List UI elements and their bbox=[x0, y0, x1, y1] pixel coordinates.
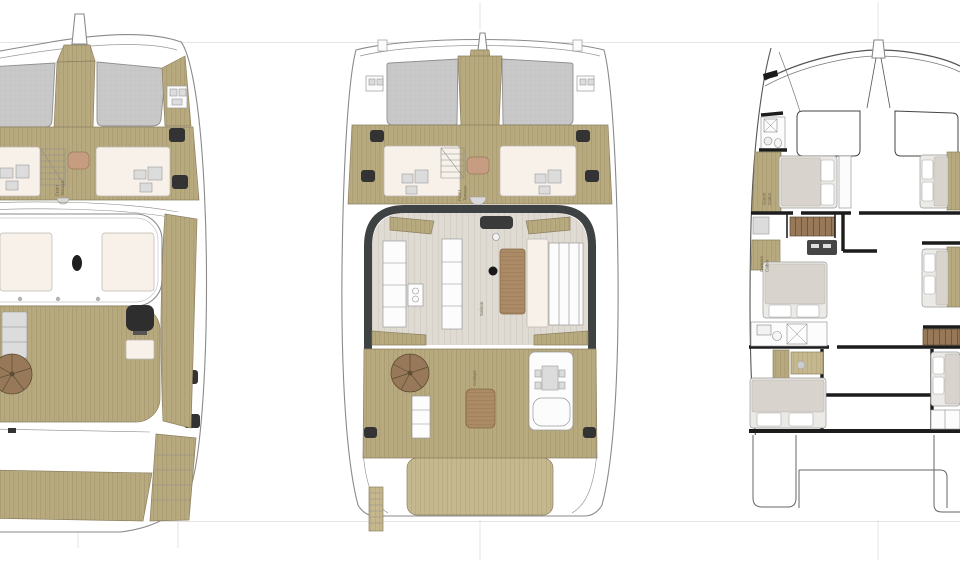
bow-post-starboard bbox=[573, 40, 582, 51]
aft-platform bbox=[0, 470, 152, 521]
side-deck bbox=[161, 214, 197, 428]
cockpit-fridge bbox=[412, 396, 430, 438]
bridgedeck-front-starboard bbox=[895, 111, 958, 156]
davit-platform bbox=[799, 470, 947, 508]
ensuite-bathroom bbox=[751, 322, 827, 346]
cockpit: Cockpit bbox=[363, 349, 597, 458]
saloon: Saloon bbox=[368, 209, 592, 349]
guest-cabin-label-line1: Guest bbox=[762, 192, 767, 205]
bow-post-port bbox=[378, 40, 387, 51]
saloon-table bbox=[500, 249, 525, 314]
sink-icon bbox=[764, 137, 772, 145]
terrace-table bbox=[68, 152, 89, 169]
front-terrace-label-line1: Front bbox=[457, 189, 462, 201]
helm-seat bbox=[126, 305, 154, 331]
crew-cabin bbox=[759, 113, 787, 150]
transom-steps bbox=[150, 434, 196, 521]
cockpit-label: Cockpit bbox=[472, 370, 477, 386]
front-terrace-label-line2: Terrace bbox=[60, 180, 65, 196]
coachroof bbox=[0, 214, 162, 306]
flybridge-deck-plan: Front Terrace bbox=[0, 0, 230, 565]
bow-pole bbox=[72, 14, 87, 44]
lounge-pad bbox=[2, 312, 27, 358]
vanity bbox=[791, 352, 823, 374]
sink-icon bbox=[757, 325, 771, 335]
saloon-sofa bbox=[527, 239, 548, 327]
boarding-ladder bbox=[369, 487, 383, 531]
port-aft-cabin bbox=[750, 350, 826, 428]
stool bbox=[797, 361, 805, 369]
bow-locker bbox=[167, 86, 187, 108]
sunpad-starboard bbox=[500, 146, 576, 196]
side-daybed bbox=[549, 243, 583, 325]
hull-bottoms bbox=[753, 435, 960, 512]
main-deck-plan: Front Terrace bbox=[330, 0, 630, 565]
front-terrace-label-line2: Terrace bbox=[463, 185, 468, 201]
roof-sunpad-port bbox=[0, 233, 52, 291]
bow-pole bbox=[478, 33, 487, 50]
companionway-steps bbox=[790, 217, 835, 236]
guest-cabin-label-line2: Cabin bbox=[767, 192, 772, 205]
galley-sink bbox=[408, 284, 423, 306]
bow-pole bbox=[872, 40, 885, 58]
roof-sunpad-starboard bbox=[102, 233, 154, 291]
flybridge-aft-deck bbox=[0, 305, 160, 422]
helm-bench bbox=[126, 340, 154, 359]
companionway-steps bbox=[923, 329, 960, 345]
saloon-label: Saloon bbox=[479, 301, 484, 316]
toilet-icon bbox=[773, 332, 782, 341]
toilet-icon bbox=[775, 139, 782, 148]
compass bbox=[493, 234, 500, 241]
mast-post bbox=[489, 267, 498, 276]
nav-console bbox=[480, 216, 513, 229]
lower-deck-plan: Guest Cabin Owners bbox=[735, 0, 960, 565]
terrace-table bbox=[467, 157, 489, 174]
roof-hatch bbox=[72, 255, 82, 271]
helm-seat-base bbox=[133, 331, 147, 335]
bridgedeck-front-port bbox=[797, 111, 860, 156]
port-companionway bbox=[753, 214, 835, 238]
catamaran-plans-canvas: Front Terrace bbox=[0, 0, 960, 565]
swim-platform bbox=[407, 458, 553, 515]
spiral-staircase-icon bbox=[391, 354, 429, 392]
cockpit-dining bbox=[529, 352, 573, 430]
cockpit-table bbox=[466, 389, 495, 428]
starboard-cabins bbox=[920, 152, 960, 429]
port-owners-cabin: Owners Cabin bbox=[751, 240, 837, 346]
owners-cabin-label-line1: Owners bbox=[759, 255, 764, 272]
cockpit-seat bbox=[533, 398, 570, 426]
owners-cabin-label-line2: Cabin bbox=[765, 259, 770, 272]
front-terrace-label-line1: Front bbox=[55, 184, 60, 196]
port-guest-cabin: Guest Cabin bbox=[752, 152, 851, 212]
